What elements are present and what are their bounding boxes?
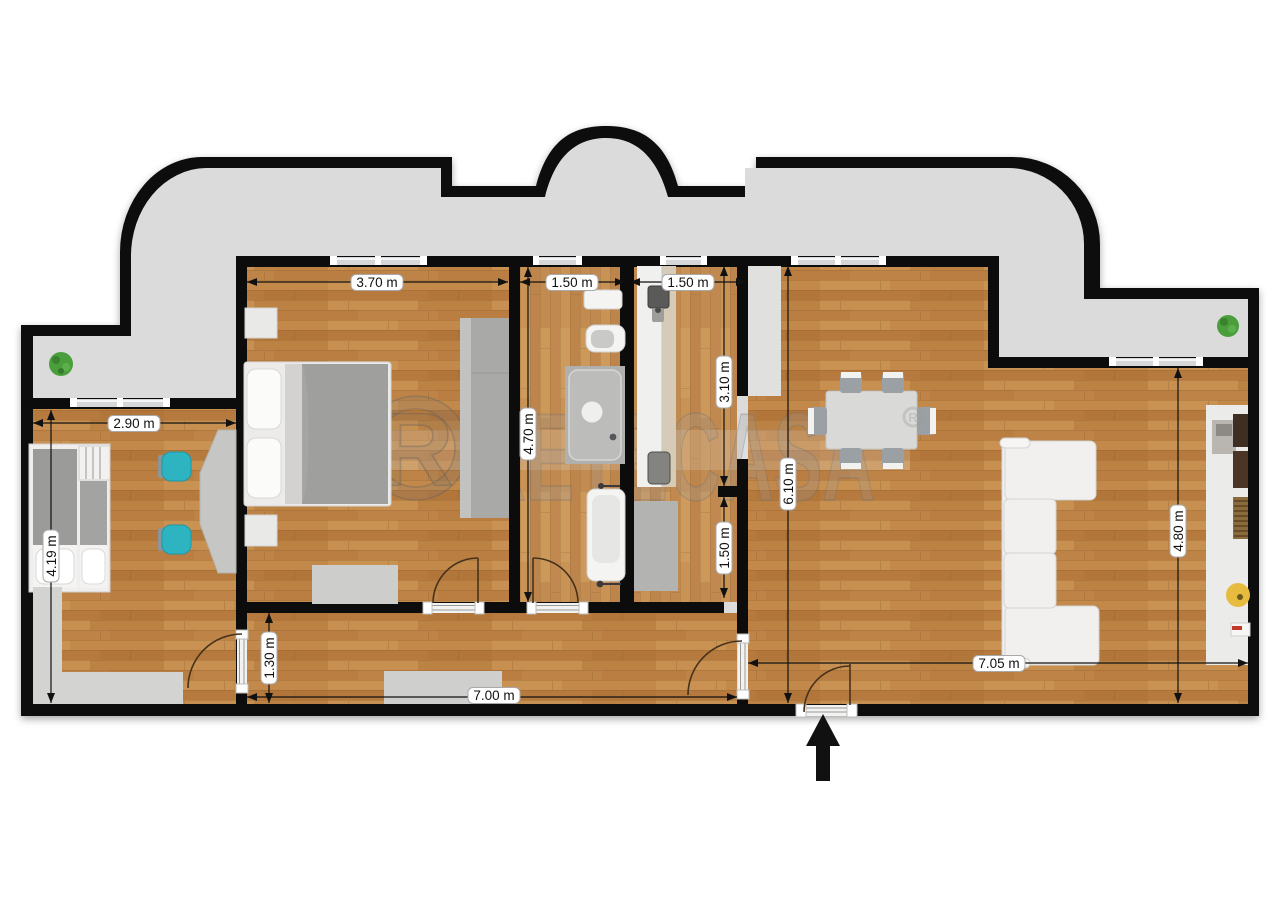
svg-text:1.30 m: 1.30 m — [262, 637, 277, 678]
svg-text:1.50 m: 1.50 m — [667, 275, 708, 290]
svg-text:3.70 m: 3.70 m — [356, 275, 397, 290]
svg-text:1.50 m: 1.50 m — [717, 527, 732, 568]
svg-text:1.50 m: 1.50 m — [551, 275, 592, 290]
svg-text:R: R — [908, 410, 918, 425]
svg-text:4.80 m: 4.80 m — [1171, 510, 1186, 551]
svg-text:2.90 m: 2.90 m — [113, 416, 154, 431]
svg-text:3.10 m: 3.10 m — [717, 361, 732, 402]
svg-text:6.10 m: 6.10 m — [781, 463, 796, 504]
svg-text:4.19 m: 4.19 m — [44, 535, 59, 576]
svg-text:7.00 m: 7.00 m — [473, 688, 514, 703]
svg-text:7.05 m: 7.05 m — [978, 656, 1019, 671]
svg-text:4.70 m: 4.70 m — [521, 413, 536, 454]
